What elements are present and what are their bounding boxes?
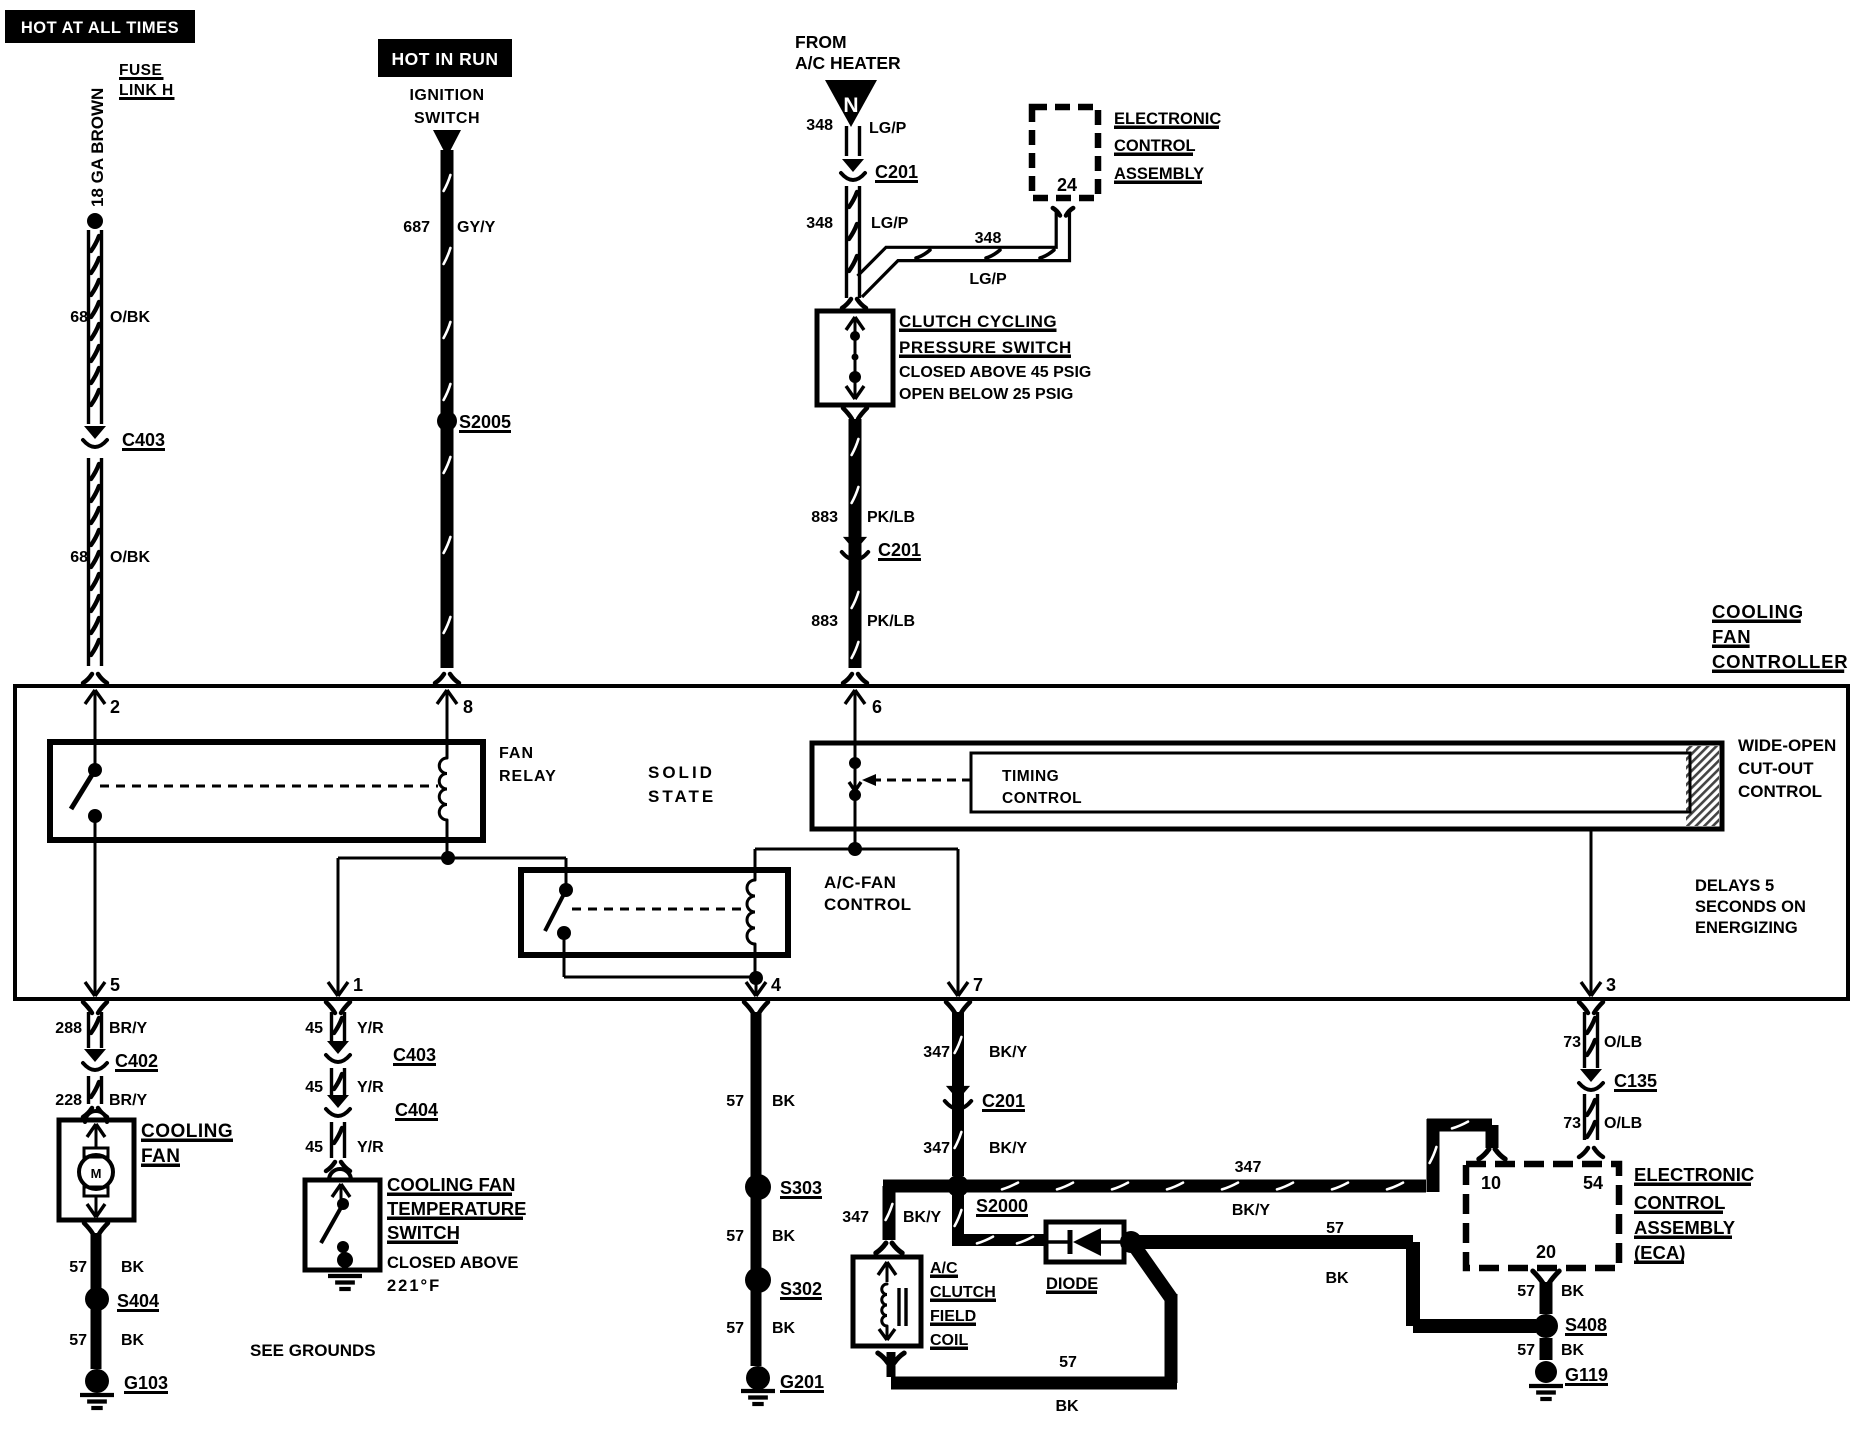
svg-text:FUSE: FUSE — [119, 62, 162, 79]
svg-text:COIL: COIL — [930, 1332, 968, 1349]
svg-text:O/BK: O/BK — [110, 549, 150, 566]
svg-text:BK: BK — [1325, 1270, 1349, 1287]
svg-text:ASSEMBLY: ASSEMBLY — [1114, 165, 1204, 183]
svg-text:BK: BK — [772, 1228, 796, 1245]
svg-text:CONTROL: CONTROL — [1738, 782, 1822, 801]
svg-text:C403: C403 — [393, 1045, 436, 1065]
svg-text:288: 288 — [55, 1020, 82, 1037]
svg-text:ENERGIZING: ENERGIZING — [1695, 919, 1798, 937]
svg-text:O/LB: O/LB — [1604, 1034, 1642, 1051]
svg-text:883: 883 — [811, 509, 838, 526]
svg-text:BK: BK — [1561, 1342, 1585, 1359]
svg-text:FROM: FROM — [795, 32, 847, 52]
svg-text:CONTROL: CONTROL — [824, 895, 912, 914]
svg-text:57: 57 — [726, 1320, 744, 1337]
svg-text:LG/P: LG/P — [869, 120, 907, 137]
svg-text:ELECTRONIC: ELECTRONIC — [1634, 1164, 1754, 1185]
svg-text:LG/P: LG/P — [969, 271, 1007, 288]
svg-text:M: M — [91, 1166, 102, 1181]
svg-text:BK: BK — [772, 1320, 796, 1337]
svg-text:A/C-FAN: A/C-FAN — [824, 873, 896, 892]
svg-text:CUT-OUT: CUT-OUT — [1738, 759, 1814, 778]
svg-text:C201: C201 — [878, 540, 921, 560]
svg-text:10: 10 — [1481, 1173, 1501, 1193]
svg-text:BK: BK — [121, 1259, 145, 1276]
svg-text:O/BK: O/BK — [110, 309, 150, 326]
svg-text:Y/R: Y/R — [357, 1020, 384, 1037]
svg-text:45: 45 — [305, 1079, 323, 1096]
svg-text:45: 45 — [305, 1139, 323, 1156]
svg-text:CLUTCH: CLUTCH — [930, 1284, 996, 1301]
svg-text:8: 8 — [463, 697, 473, 717]
svg-text:SECONDS ON: SECONDS ON — [1695, 898, 1806, 916]
svg-text:COOLING FAN: COOLING FAN — [387, 1174, 515, 1195]
svg-text:GY/Y: GY/Y — [457, 219, 496, 236]
svg-text:Y/R: Y/R — [357, 1079, 384, 1096]
svg-text:(ECA): (ECA) — [1634, 1242, 1685, 1263]
svg-text:BK/Y: BK/Y — [989, 1140, 1028, 1157]
svg-text:SOLID: SOLID — [648, 763, 715, 782]
svg-text:6: 6 — [872, 697, 882, 717]
svg-text:S404: S404 — [117, 1291, 159, 1311]
svg-text:348: 348 — [806, 117, 833, 134]
svg-text:LINK H: LINK H — [119, 82, 174, 99]
svg-text:347: 347 — [923, 1140, 950, 1157]
svg-text:HOT IN RUN: HOT IN RUN — [391, 49, 498, 69]
svg-text:BR/Y: BR/Y — [109, 1092, 148, 1109]
svg-text:221°F: 221°F — [387, 1277, 441, 1295]
svg-text:C201: C201 — [982, 1091, 1025, 1111]
svg-text:73: 73 — [1563, 1115, 1581, 1132]
svg-text:57: 57 — [1517, 1342, 1535, 1359]
svg-text:O/LB: O/LB — [1604, 1115, 1642, 1132]
svg-text:ASSEMBLY: ASSEMBLY — [1634, 1217, 1736, 1238]
svg-text:COOLING: COOLING — [1712, 601, 1804, 622]
svg-text:CLUTCH CYCLING: CLUTCH CYCLING — [899, 312, 1057, 331]
svg-text:N: N — [843, 94, 858, 117]
svg-text:LG/P: LG/P — [871, 215, 909, 232]
svg-text:TEMPERATURE: TEMPERATURE — [387, 1198, 526, 1219]
svg-text:A/C HEATER: A/C HEATER — [795, 53, 901, 73]
svg-text:C403: C403 — [122, 430, 165, 450]
svg-text:S302: S302 — [780, 1279, 822, 1299]
svg-text:BK/Y: BK/Y — [1232, 1202, 1271, 1219]
svg-text:FAN: FAN — [1712, 626, 1751, 647]
svg-text:54: 54 — [1583, 1173, 1603, 1193]
svg-text:7: 7 — [973, 975, 983, 995]
svg-text:57: 57 — [1326, 1220, 1344, 1237]
svg-text:BK: BK — [1055, 1398, 1079, 1415]
svg-text:G119: G119 — [1565, 1365, 1608, 1385]
svg-text:883: 883 — [811, 613, 838, 630]
svg-text:3: 3 — [1606, 975, 1616, 995]
svg-text:HOT AT ALL TIMES: HOT AT ALL TIMES — [21, 19, 179, 37]
svg-text:CLOSED ABOVE: CLOSED ABOVE — [387, 1254, 518, 1272]
svg-text:A/C: A/C — [930, 1260, 958, 1277]
svg-text:C402: C402 — [115, 1051, 158, 1071]
svg-text:5: 5 — [110, 975, 120, 995]
svg-text:PRESSURE SWITCH: PRESSURE SWITCH — [899, 338, 1072, 357]
svg-text:57: 57 — [1517, 1283, 1535, 1300]
svg-text:ELECTRONIC: ELECTRONIC — [1114, 110, 1221, 128]
svg-text:57: 57 — [726, 1228, 744, 1245]
svg-text:1: 1 — [353, 975, 363, 995]
svg-text:347: 347 — [842, 1209, 869, 1226]
svg-text:BR/Y: BR/Y — [109, 1020, 148, 1037]
svg-text:BK: BK — [121, 1332, 145, 1349]
svg-text:PK/LB: PK/LB — [867, 509, 915, 526]
svg-text:DELAYS 5: DELAYS 5 — [1695, 877, 1774, 895]
svg-text:CONTROL: CONTROL — [1634, 1192, 1725, 1213]
svg-text:C135: C135 — [1614, 1071, 1657, 1091]
svg-text:BK: BK — [772, 1093, 796, 1110]
svg-text:CONTROL: CONTROL — [1002, 790, 1082, 807]
svg-text:DIODE: DIODE — [1046, 1275, 1098, 1293]
svg-text:687: 687 — [403, 219, 430, 236]
svg-text:24: 24 — [1057, 175, 1077, 195]
svg-text:CLOSED ABOVE 45 PSIG: CLOSED ABOVE 45 PSIG — [899, 364, 1091, 381]
svg-text:IGNITION: IGNITION — [409, 87, 484, 104]
svg-text:C404: C404 — [395, 1100, 438, 1120]
svg-text:C201: C201 — [875, 162, 918, 182]
svg-text:WIDE-OPEN: WIDE-OPEN — [1738, 736, 1836, 755]
svg-text:68: 68 — [70, 309, 88, 326]
svg-text:CONTROLLER: CONTROLLER — [1712, 651, 1848, 672]
svg-text:BK/Y: BK/Y — [903, 1209, 942, 1226]
svg-text:20: 20 — [1536, 1242, 1556, 1262]
svg-text:STATE: STATE — [648, 787, 716, 806]
svg-text:S408: S408 — [1565, 1315, 1607, 1335]
svg-text:347: 347 — [923, 1044, 950, 1061]
svg-text:RELAY: RELAY — [499, 768, 557, 785]
svg-text:BK/Y: BK/Y — [989, 1044, 1028, 1061]
svg-text:57: 57 — [69, 1332, 87, 1349]
svg-text:57: 57 — [726, 1093, 744, 1110]
svg-text:18 GA BROWN: 18 GA BROWN — [88, 88, 107, 207]
svg-text:348: 348 — [975, 230, 1002, 247]
svg-text:228: 228 — [55, 1092, 82, 1109]
svg-text:CONTROL: CONTROL — [1114, 137, 1196, 155]
svg-text:S303: S303 — [780, 1178, 822, 1198]
svg-text:S2000: S2000 — [976, 1196, 1028, 1216]
svg-text:347: 347 — [1235, 1159, 1262, 1176]
svg-text:68: 68 — [70, 549, 88, 566]
svg-text:S2005: S2005 — [459, 412, 511, 432]
svg-text:G103: G103 — [124, 1373, 168, 1393]
svg-text:FAN: FAN — [499, 745, 534, 762]
svg-text:57: 57 — [69, 1259, 87, 1276]
svg-text:OPEN BELOW 25 PSIG: OPEN BELOW 25 PSIG — [899, 386, 1073, 403]
svg-text:TIMING: TIMING — [1002, 768, 1059, 785]
svg-text:57: 57 — [1059, 1354, 1077, 1371]
svg-text:45: 45 — [305, 1020, 323, 1037]
svg-text:BK: BK — [1561, 1283, 1585, 1300]
svg-text:FIELD: FIELD — [930, 1308, 976, 1325]
svg-text:348: 348 — [806, 215, 833, 232]
svg-text:SWITCH: SWITCH — [387, 1222, 460, 1243]
svg-text:Y/R: Y/R — [357, 1139, 384, 1156]
svg-text:4: 4 — [771, 975, 781, 995]
svg-text:2: 2 — [110, 697, 120, 717]
svg-text:PK/LB: PK/LB — [867, 613, 915, 630]
svg-text:SEE GROUNDS: SEE GROUNDS — [250, 1341, 376, 1360]
svg-text:G201: G201 — [780, 1372, 824, 1392]
svg-text:73: 73 — [1563, 1034, 1581, 1051]
svg-text:SWITCH: SWITCH — [414, 110, 480, 127]
